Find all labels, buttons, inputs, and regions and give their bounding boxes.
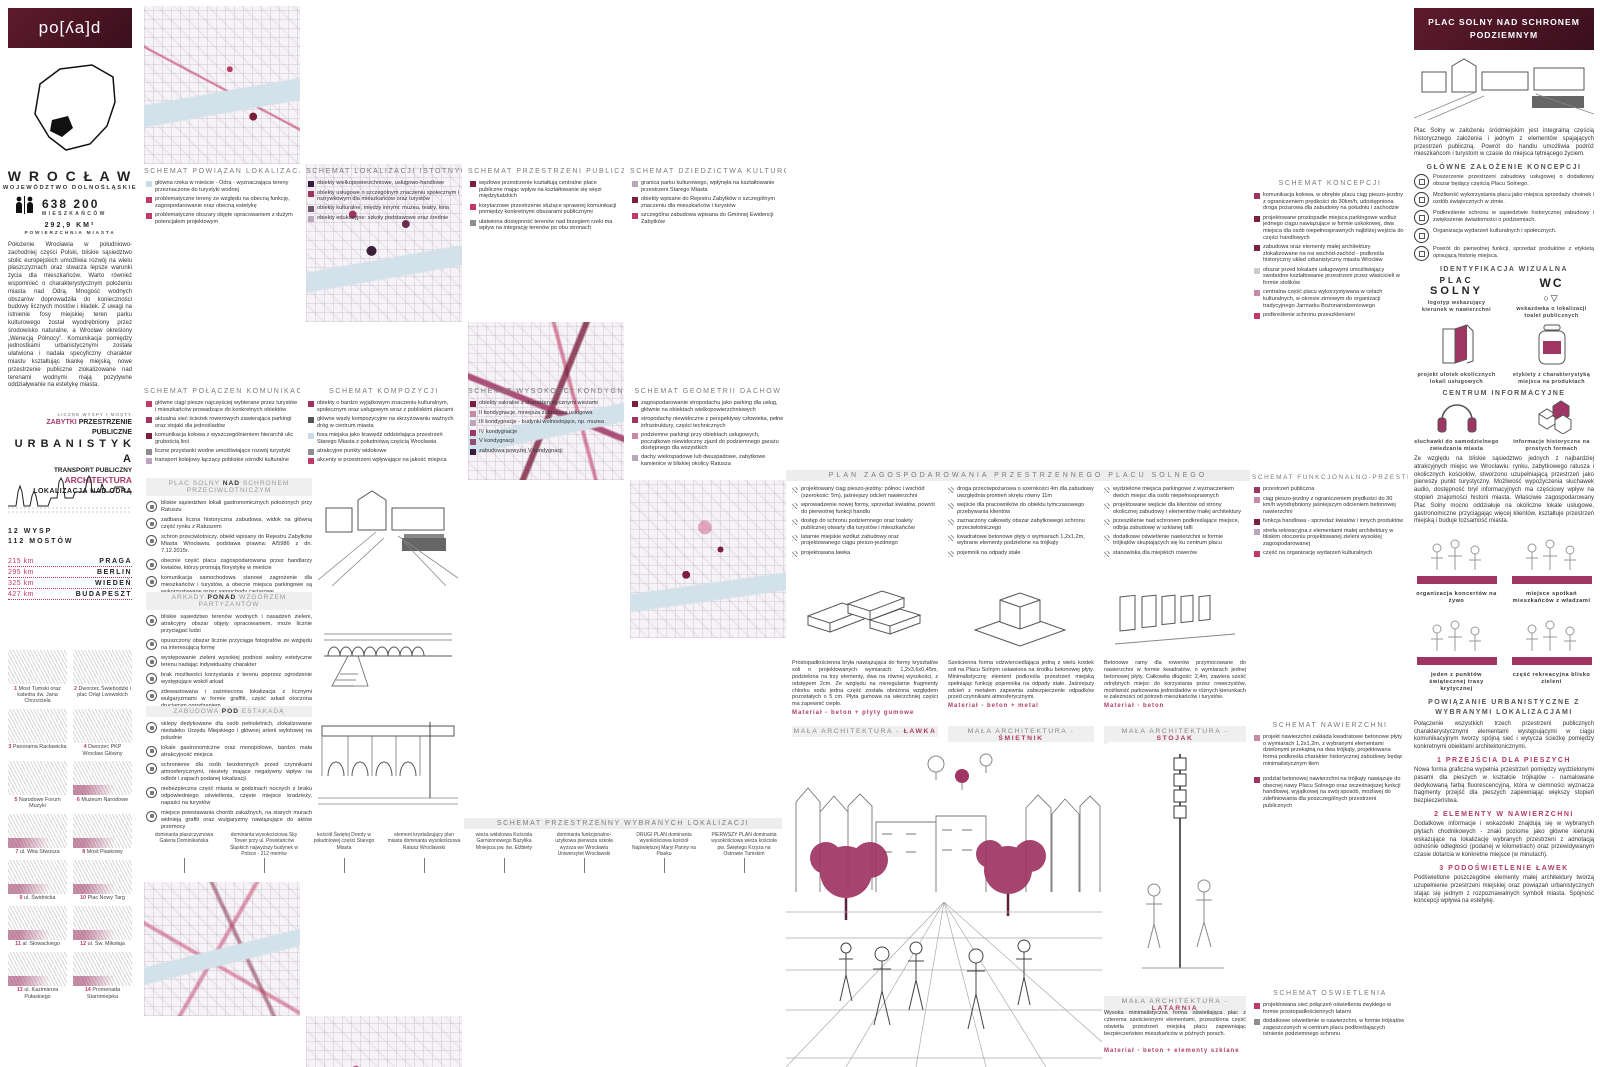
schemat8-legend: zagospodarowanie stropodachu jako parkin… (632, 400, 784, 470)
right-banner: PLAC SOLNY NAD SCHRONEM PODZIEMNYM (1414, 8, 1594, 50)
plan-legend-col3: wydzielone miejsca parkingowe z wyznacze… (1104, 486, 1246, 559)
legend-swatch-icon (1254, 487, 1260, 493)
legend-swatch-icon (632, 197, 638, 203)
analysis-bullet-icon (146, 559, 157, 570)
schemat7-legend: obiekty sakralne z charakterystycznymi w… (470, 400, 622, 457)
people-pictogram-icon (1417, 613, 1497, 665)
landmark-caption: 4 Dworzec PKP Wrocław Główny (73, 744, 132, 757)
legend-item: główne ciągi piesze najczęściej wybieran… (146, 400, 298, 413)
city-title: W R O C Ł A W (0, 168, 140, 184)
legend-item: centralna część placu wykorzystywana w c… (1254, 289, 1406, 309)
sec1-text: Nowa forma graficzna wypełnia przestrzeń… (1414, 767, 1594, 806)
legend-swatch-icon (1254, 1019, 1260, 1025)
distance-city: WIEDEŃ (95, 580, 132, 587)
oswietlenie-title: SCHEMAT OŚWIETLENIA (1252, 990, 1408, 997)
legend-item: granica parku kulturowego, wpłynęła na k… (632, 180, 784, 193)
legend-swatch-icon (470, 449, 476, 455)
legend-item: komunikacja kołowa, w obrębie placu ciąg… (1254, 192, 1406, 212)
analysis-bullet-icon (146, 576, 157, 587)
legend-swatch-icon (146, 213, 152, 219)
legend-item: atrakcyjne punkty widokowe (308, 448, 460, 455)
analysis-bullet-icon (146, 501, 157, 512)
legend-swatch-icon (1254, 290, 1260, 296)
funkcjonalno-title: SCHEMAT FUNKCJONALNO-PRZESTRZENNY (1252, 474, 1408, 481)
concept-bullet-icon (1414, 228, 1429, 243)
rack-material: Materiał - beton (1104, 703, 1246, 709)
centrum-title: CENTRUM INFORMACYJNE (1414, 390, 1594, 397)
landmark-item: 5 Narodowe Forum Muzyki (8, 761, 67, 809)
centrum-text: Ze względu na bliskie sąsiedztwo jednych… (1414, 456, 1594, 526)
landmark-caption: 5 Narodowe Forum Muzyki (8, 797, 67, 810)
legend-swatch-icon (308, 206, 314, 212)
bench-material: Materiał - beton + płyty gumowe (792, 710, 938, 716)
legend-swatch-icon (146, 401, 152, 407)
schemat6-title: SCHEMAT KOMPOZYCJI (306, 388, 462, 395)
islands-count: 12 WYSP (8, 528, 52, 535)
landmark-item: 1 Most Tumski oraz katedra św. Jana Chrz… (8, 650, 67, 705)
legend-swatch-icon (146, 449, 152, 455)
landmark-caption: 7 ul. Wita Stwosza (8, 849, 67, 855)
landmark-sketch (73, 906, 132, 940)
legend-swatch-icon (1254, 735, 1260, 741)
legend-swatch-icon (146, 417, 152, 423)
map-powiazan-lokalizacji (144, 6, 300, 164)
legend-swatch-icon (146, 433, 152, 439)
bench-description-block: Prostopadłościenna bryła nawiązująca do … (792, 660, 938, 716)
concept-bullet-icon (1414, 192, 1429, 207)
legend-swatch-icon (308, 191, 314, 197)
legend-item: obiekty edukacyjne: szkoły podstawowe or… (308, 215, 460, 222)
site-analysis-item: schron przeciwlotniczy, obiekt wpisany d… (146, 534, 312, 554)
section-arkady-title: ARKADY PONAD WZGÓRZEM PARTYZANTÓW (146, 592, 312, 610)
pictogram-cell: miejsce spotkań mieszkańców z władzami (1509, 532, 1594, 605)
wc-cell: WC○▽ wskazówka o lokalizacji toalet publ… (1509, 276, 1594, 319)
population-value: 638 200 (42, 197, 132, 211)
legend-swatch-icon (1254, 551, 1260, 557)
site-analysis-item: sklepy dedykowane dla osób pełnoletnich,… (146, 721, 312, 741)
nawierzchnia-p2: podział betonowej nawierzchni na trójkąt… (1254, 776, 1406, 810)
legend-item: transport kolejowy łączący pobliskie ośr… (146, 457, 298, 464)
legend-item: stropodachy niewidoczne z perspektywy cz… (632, 416, 784, 429)
area-value: 292,9 KM² (0, 222, 140, 229)
legend-swatch-icon (632, 417, 638, 423)
landmark-caption: 14 Promenada Staromiejska (73, 987, 132, 1000)
section-arkady-items: bliskie sąsiedztwo terenów wodnych i nas… (146, 614, 312, 710)
sec1-title: 1 PRZEJŚCIA DLA PIESZYCH (1414, 757, 1594, 764)
legend-item: problematyczne tereny ze względu na obec… (146, 196, 298, 209)
legend-item: przestrzeń publiczna (1254, 486, 1406, 493)
people-icon (14, 196, 28, 214)
analysis-bullet-icon (146, 535, 157, 546)
logotype-caption: logotyp wskazujący kierunek w nawierzchn… (1414, 300, 1499, 313)
schemat7-title: SCHEMAT WYSOKOŚCI KONDYGNACJI (468, 388, 624, 395)
plan-legend-item: dodatkowe oświetlenie nawierzchni w form… (1104, 534, 1246, 547)
plan-legend-item: wejście dla pracowników do obiektu tymcz… (948, 502, 1094, 515)
schemat3-title: SCHEMAT PRZESTRZENI PUBLICZNYCH (468, 168, 624, 175)
plan-legend-item: dostęp do schronu podziemnego oraz toale… (792, 518, 938, 531)
powiazanie-title: POWIĄZANIE URBANISTYCZNE Z WYBRANYMI LOK… (1414, 698, 1594, 718)
landmark-caption: 10 Plac Nowy Targ (73, 895, 132, 901)
headphones-caption: słuchawki do samodzielnego zwiedzania mi… (1414, 439, 1499, 452)
region-subtitle: WOJEWÓDZTWO DOLNOŚLĄSKIE (0, 185, 140, 191)
legend-item: główna rzeka w mieście - Odra - wyznacza… (146, 180, 298, 193)
legend-swatch-icon (1254, 245, 1260, 251)
legend-item: funkcja handlowa - sprzedaż kwiatów i in… (1254, 518, 1406, 525)
magenta-trees (810, 840, 1046, 898)
landmark-sketch (8, 709, 67, 743)
landmark-item: 6 Muzeum Narodowe (73, 761, 132, 809)
identyfikacja-title: IDENTYFIKACJA WIZUALNA (1414, 266, 1594, 273)
plaza-perspective-render (786, 742, 1102, 1067)
powiazanie-text: Połączenie wszystkich trzech przestrzeni… (1414, 721, 1594, 752)
panorama-label: element krystalizujący plan miasta domin… (384, 832, 464, 857)
landmark-item: 10 Plac Nowy Targ (73, 860, 132, 902)
people-pictogram-icon (1417, 532, 1497, 584)
legend-item: IV kondygnacje (470, 429, 622, 436)
area-label: POWIERZCHNIA MIASTA (0, 231, 140, 236)
legend-swatch-icon (308, 417, 314, 423)
site-analysis-item: brak możliwości korzystania z terenu pop… (146, 672, 312, 686)
landmark-sketch (8, 650, 67, 684)
site-analysis-item: zadbana liczna historyczna zabudowa, wid… (146, 517, 312, 531)
site-analysis-item: występowanie zieleni wysokiej podnosi wa… (146, 655, 312, 669)
legend-swatch-icon (632, 433, 638, 439)
legend-swatch-icon (1254, 529, 1260, 535)
legend-item: ciąg pieszo-jezdny z ograniczeniem prędk… (1254, 496, 1406, 516)
legend-swatch-icon (308, 216, 314, 222)
analysis-bullet-icon (146, 656, 157, 667)
distance-row: 325 km WIEDEŃ (8, 578, 132, 589)
keyword-urbanistyka: U R B A N I S T Y K A (8, 437, 132, 467)
koncepcja-item: Powrót do pierwotnej funkcji, sprzedaż p… (1414, 246, 1594, 261)
pictogram-cell: jeden z punktów świątecznej trasy krytyc… (1414, 613, 1499, 693)
legend-item: liczne przystanki wodne umożliwiające ro… (146, 448, 298, 455)
nawierzchnia-p1: projekt nawierzchni zakłada kwadratowe b… (1254, 734, 1406, 768)
panorama-label: DRUGI PLAN dominanta wysokościowa kośció… (624, 832, 704, 857)
keyword-zabytki: ZABYTKI (46, 419, 76, 426)
legend-item: problematyczne obszary objęte opracowani… (146, 212, 298, 225)
legend-item: akcenty w przestrzeni wpływające na jako… (308, 457, 460, 464)
balloons (928, 754, 992, 790)
plan-legend-item: wydzielone miejsca parkingowe z wyznacze… (1104, 486, 1246, 499)
legend-swatch-icon (1254, 1003, 1260, 1009)
map-dziedzictwa-kulturowego (630, 480, 786, 638)
legend-swatch-icon (470, 420, 476, 426)
analysis-bullet-icon (146, 639, 157, 650)
legend-item: projektowana sieć połączeń oświetlenia z… (1254, 1002, 1406, 1015)
landmark-item: 7 ul. Wita Stwosza (8, 814, 67, 856)
concept-bullet-icon (1414, 210, 1429, 225)
landmark-item: 2 Dworzec Świebodzki i plac Orląt Lwowsk… (73, 650, 132, 705)
legend-swatch-icon (146, 197, 152, 203)
schemat5-legend: główne ciągi piesze najczęściej wybieran… (146, 400, 298, 467)
legend-swatch-icon (1254, 216, 1260, 222)
landmark-sketch (8, 906, 67, 940)
analysis-bullet-icon (146, 615, 157, 626)
schemat1-legend: główna rzeka w mieście - Odra - wyznacza… (146, 180, 298, 228)
sec3-title: 3 PODOŚWIETLENIE ŁAWEK (1414, 865, 1594, 872)
plan-legend-item: latarnie miejskie wzdłuż zabudowy oraz p… (792, 534, 938, 547)
plan-legend-item: projektowana ławka (792, 550, 938, 557)
site-analysis-item: obecnie część placu zagospodarowana prze… (146, 558, 312, 572)
schemat4-legend: granica parku kulturowego, wpłynęła na k… (632, 180, 784, 228)
leaflet-icon (1437, 323, 1477, 367)
section-estakada-title: ZABUDOWA POD ESTAKADĄ (146, 706, 312, 717)
landmark-grid: 1 Most Tumski oraz katedra św. Jana Chrz… (8, 650, 132, 1000)
pictogram-cell: organizacja koncertów na żywo (1414, 532, 1499, 605)
analysis-bullet-icon (146, 673, 157, 684)
site-analysis-item: niebezpieczna część miasta w godzinach n… (146, 786, 312, 806)
landmark-caption: 2 Dworzec Świebodzki i plac Orląt Lwowsk… (73, 686, 132, 699)
legend-item: V kondygnacji (470, 438, 622, 445)
analysis-bullet-icon (146, 518, 157, 529)
bin-material: Materiał - beton + metal (948, 703, 1094, 709)
koncepcja-title: SCHEMAT KONCEPCJI (1252, 180, 1408, 187)
distance-list: 215 km PRAGA 295 km BERLIN 325 km WIEDEŃ… (8, 556, 132, 600)
product-jar-icon (1534, 323, 1570, 367)
koncepcja-item: Poszerzenie przestrzeni zabudowy usługow… (1414, 174, 1594, 189)
map-kompozycji (306, 1016, 462, 1067)
legend-item: szczególna zabudowa wpisana do Gminnej E… (632, 212, 784, 225)
legend-swatch-icon (470, 181, 476, 187)
landmark-caption: 13 ul. Kazimierza Pułaskiego (8, 987, 67, 1000)
landmark-item: 14 Promenada Staromiejska (73, 952, 132, 1000)
legend-item: zabudowa oraz elementy małej architektur… (1254, 244, 1406, 264)
info-cubes-icon (1529, 400, 1575, 434)
legend-item: ułatwiona dostępność terenów nad brzegie… (470, 219, 622, 232)
distance-city: PRAGA (99, 558, 132, 565)
bin-sketch (955, 568, 1085, 654)
plan-legend-col1: projektowany ciąg pieszo-jezdny: północ … (792, 486, 938, 559)
legend-swatch-icon (146, 458, 152, 464)
schemat8-title: SCHEMAT GEOMETRII DACHÓW (630, 388, 786, 395)
landmark-sketch (73, 650, 132, 684)
koncepcja-zalozenia-title: GŁÓWNE ZAŁOŻENIE KONCEPCJI (1414, 164, 1594, 171)
leaflet-cell: projekt ulotek okolicznych lokali usługo… (1414, 323, 1499, 385)
legend-swatch-icon (632, 401, 638, 407)
legend-swatch-icon (470, 439, 476, 445)
people-pictogram-icon (1512, 613, 1592, 665)
brand-logo: po[ʎa]d (8, 8, 132, 48)
distance-km: 427 km (8, 591, 34, 598)
legend-swatch-icon (632, 455, 638, 461)
legend-item: korytarzowe przestrzenie służące sprawne… (470, 203, 622, 216)
distance-km: 325 km (8, 580, 34, 587)
koncepcja-legend: komunikacja kołowa, w obrębie placu ciąg… (1254, 192, 1406, 321)
legend-item: obszar przed lokalami usługowymi umożliw… (1254, 267, 1406, 287)
analysis-bullet-icon (146, 811, 157, 822)
section-plac-solny-title: PLAC SOLNY NAD SCHRONEM PRZECIWLOTNICZYM (146, 478, 312, 496)
panorama-label: kościół Świętej Doroty w południowej czę… (304, 832, 384, 857)
legend-swatch-icon (1254, 193, 1260, 199)
koncepcja-item: Podkreślenie schronu w sąsiedztwie histo… (1414, 210, 1594, 225)
plan-legend-item: wprowadzenie nowej formy, sprzedaż kwiat… (792, 502, 938, 515)
analysis-bullet-icon (146, 787, 157, 798)
identyfikacja-grid: PLACSOLNY logotyp wskazujący kierunek w … (1414, 276, 1594, 385)
cubes-cell: informacje historyczne na prostych forma… (1509, 400, 1594, 452)
concept-bullet-icon (1414, 174, 1429, 189)
bench-sketch (800, 568, 930, 654)
poster-board: po[ʎa]d W R O C Ł A W WOJEWÓDZTWO DOLNOŚ… (0, 0, 1600, 1067)
plan-legend-item: projektowany ciąg pieszo-jezdny: północ … (792, 486, 938, 499)
legend-swatch-icon (632, 181, 638, 187)
legend-swatch-icon (470, 220, 476, 226)
plan-legend-col2: droga przeciwpożarowa o szerokości 4m dl… (948, 486, 1094, 559)
plan-legend-item: stanowiska dla miejskich rowerów (1104, 550, 1246, 557)
pictogram-caption: jeden z punktów świątecznej trasy krytyc… (1414, 672, 1499, 693)
legend-item: dodatkowe oświetlenie w nawierzchni, w f… (1254, 1018, 1406, 1038)
wc-caption: wskazówka o lokalizacji toalet publiczny… (1509, 306, 1594, 319)
legend-swatch-icon (470, 401, 476, 407)
legend-swatch-icon (308, 401, 314, 407)
landmark-sketch (8, 761, 67, 795)
spatial-schema-title: SCHEMAT PRZESTRZENNY WYBRANYCH LOKALIZAC… (464, 818, 782, 829)
site-analysis-item: opuszczony obszar licznie przyciąga foto… (146, 638, 312, 652)
bin-description-block: Sześcienna forma odzwierciedlająca jedną… (948, 660, 1094, 709)
funkcjonalno-legend: przestrzeń publicznaciąg pieszo-jezdny z… (1254, 486, 1406, 560)
panorama-label: dominanta płaszczyznowa Galeria Dominika… (144, 832, 224, 857)
rack-description-block: Betonowe ramy dla rowerów przymocowane d… (1104, 660, 1246, 709)
landmark-caption: 1 Most Tumski oraz katedra św. Jana Chrz… (8, 686, 67, 705)
legend-item: aktualna sieć ścieżek rowerowych zawiera… (146, 416, 298, 429)
legend-swatch-icon (1254, 497, 1260, 503)
legend-item: obiekty wielkopowierzchniowe, usługowo-h… (308, 180, 460, 187)
distance-city: BERLIN (97, 569, 132, 576)
legend-swatch-icon (308, 458, 314, 464)
bridges-count: 112 MOSTÓW (8, 538, 74, 545)
landmark-item: 9 ul. Świdnicka (8, 860, 67, 902)
landmark-caption: 6 Muzeum Narodowe (73, 797, 132, 803)
oswietlenie-legend: projektowana sieć połączeń oświetlenia z… (1254, 1002, 1406, 1041)
rack-description: Betonowe ramy dla rowerów przymocowane d… (1104, 660, 1246, 701)
plac-solny-logotype: PLACSOLNY (1414, 276, 1499, 297)
section-estakada-items: sklepy dedykowane dla osób pełnoletnich,… (146, 721, 312, 830)
legend-swatch-icon (470, 430, 476, 436)
legend-item: obiekty sakralne z charakterystycznymi w… (470, 400, 622, 407)
legend-item: obiekty usługowe o szczególnym znaczeniu… (308, 190, 460, 203)
leaflet-caption: projekt ulotek okolicznych lokali usługo… (1414, 372, 1499, 385)
panorama-label-band: dominanta płaszczyznowa Galeria Dominika… (144, 832, 784, 857)
distance-km: 295 km (8, 569, 34, 576)
legend-swatch-icon (470, 411, 476, 417)
legend-item: zabudowa powyżej V kondygnacji (470, 448, 622, 455)
map-polaczen-komunikacyjnych (144, 882, 300, 1016)
section-plac-solny: PLAC SOLNY NAD SCHRONEM PRZECIWLOTNICZYM… (146, 478, 312, 599)
legend-swatch-icon (470, 204, 476, 210)
legend-swatch-icon (308, 181, 314, 187)
schemat3-legend: węzłowe przestrzenie kształtują centraln… (470, 180, 622, 234)
master-plan-title: PLAN ZAGOSPODAROWANIA PRZESTRZENNEGO PLA… (786, 470, 1250, 481)
distance-km: 215 km (8, 558, 34, 565)
headphones-cell: słuchawki do samodzielnego zwiedzania mi… (1414, 400, 1499, 452)
distance-row: 427 km BUDAPESZT (8, 589, 132, 600)
concept-bullet-icon (1414, 246, 1429, 261)
landmark-caption: 8 Most Piaskowy (73, 849, 132, 855)
plan-legend-item: projektowane wejście dla klientów od str… (1104, 502, 1246, 515)
legend-item: projektowane prostopadłe miejsca parking… (1254, 215, 1406, 242)
site-analysis-item: bliskie sąsiedztwo lokali gastronomiczny… (146, 500, 312, 514)
legend-swatch-icon (146, 181, 152, 187)
jar-cell: etykiety z charakterystyką miejsca na pr… (1509, 323, 1594, 385)
analysis-bullet-icon (146, 746, 157, 757)
landmark-item: 11 al. Słowackiego (8, 906, 67, 948)
schemat4-title: SCHEMAT DZIEDZICTWA KULTUROWEGO (630, 168, 786, 175)
legend-swatch-icon (308, 433, 314, 439)
wc-icon: WC○▽ (1509, 276, 1594, 304)
legend-swatch-icon (632, 213, 638, 219)
legend-item: podkreślenie schronu przeszkleniami (1254, 312, 1406, 319)
jar-caption: etykiety z charakterystyką miejsca na pr… (1509, 372, 1594, 385)
plac-solny-sketch (1414, 54, 1594, 120)
landmark-sketch (73, 709, 132, 743)
pictogram-caption: organizacja koncertów na żywo (1414, 591, 1499, 605)
plan-legend-item: przeszklenie nad schronem podkreślające … (1104, 518, 1246, 531)
legend-item: dachy wielospadowe lub dwuspadowe, zabyt… (632, 454, 784, 467)
headphones-icon (1434, 400, 1480, 434)
nawierzchnia-title: SCHEMAT NAWIERZCHNI (1252, 722, 1408, 729)
schemat6-legend: obiekty o bardzo wyjątkowym znaczeniu ku… (308, 400, 460, 467)
bin-description: Sześcienna forma odzwierciedlająca jedną… (948, 660, 1094, 701)
population-label: MIESZKAŃCÓW (42, 211, 132, 217)
site-analysis-item: lokale gastronomiczne oraz monopolowe, b… (146, 745, 312, 759)
sec3-text: Podświetlone poszczególne elementy małej… (1414, 875, 1594, 906)
schemat2-legend: obiekty wielkopowierzchniowe, usługowo-h… (308, 180, 460, 224)
legend-swatch-icon (1254, 519, 1260, 525)
landmark-caption: 3 Panorama Racławicka (8, 744, 67, 750)
pictogram-caption: część rekreacyjna blisko zieleni (1509, 672, 1594, 686)
schemat5-title: SCHEMAT POŁĄCZEŃ KOMUNIKACYJNYCH (144, 388, 300, 395)
sketch-plac-solny (318, 480, 458, 586)
section-plac-solny-items: bliskie sąsiedztwo lokali gastronomiczny… (146, 500, 312, 596)
analysis-bullet-icon (146, 763, 157, 774)
sketch-arkady (318, 596, 458, 702)
landmark-item: 3 Panorama Racławicka (8, 709, 67, 757)
sec2-text: Dodatkowe informacje i wskazówki znajduj… (1414, 821, 1594, 860)
site-analysis-item: bliskie sąsiedztwo terenów wodnych i nas… (146, 614, 312, 634)
legend-swatch-icon (1254, 313, 1260, 319)
legend-item: część na organizację wydarzeń kulturalny… (1254, 550, 1406, 557)
legend-swatch-icon (1254, 777, 1260, 783)
landmark-sketch (73, 761, 132, 795)
analysis-bullet-icon (146, 690, 157, 701)
sketch-estakada (318, 712, 458, 812)
landmark-caption: 11 al. Słowackiego (8, 941, 67, 947)
legend-item: II kondygnacje, mniejsza zabudowa usługo… (470, 410, 622, 417)
legend-item: główne węzły kompozycyjne na skrzyżowani… (308, 416, 460, 429)
landmark-item: 12 ul. Św. Mikołaja (73, 906, 132, 948)
section-estakada: ZABUDOWA POD ESTAKADĄ sklepy dedykowane … (146, 706, 312, 834)
panorama-label: dominanta wysokościowa Sky Tower przy ul… (224, 832, 304, 857)
poland-map (22, 56, 118, 164)
bike-rack-sketch (1110, 568, 1240, 654)
keyword-przestrzenie: PRZESTRZENIE PUBLICZNE (79, 419, 132, 435)
pictogram-grid: organizacja koncertów na żywo miejsce sp… (1414, 532, 1594, 693)
schemat2-title: SCHEMAT LOKALIZACJI ISTOTNYCH USŁUG (306, 168, 462, 175)
legend-swatch-icon (308, 449, 314, 455)
right-column: PLAC SOLNY NAD SCHRONEM PODZIEMNYM Plac … (1414, 8, 1594, 906)
lantern-material: Materiał - beton + elementy szklane (1104, 1048, 1246, 1054)
plan-legend-item: zaznaczony całkowity obszar zabytkowego … (948, 518, 1094, 531)
legend-item: obiekty wpisane do Rejestru Zabytków o s… (632, 196, 784, 209)
landmark-sketch (8, 814, 67, 848)
right-intro: Plac Solny w założeniu śródmiejskim jest… (1414, 128, 1594, 159)
landmark-item: 4 Dworzec PKP Wrocław Główny (73, 709, 132, 757)
pictogram-cell: część rekreacyjna blisko zieleni (1509, 613, 1594, 693)
panorama-label: wieża widokowa Kościoła Garnizonowego Ba… (464, 832, 544, 857)
bench-description: Prostopadłościenna bryła nawiązująca do … (792, 660, 938, 708)
legend-item: III kondygnacje - budynki wolnostojące, … (470, 419, 622, 426)
landmark-item: 13 ul. Kazimierza Pułaskiego (8, 952, 67, 1000)
